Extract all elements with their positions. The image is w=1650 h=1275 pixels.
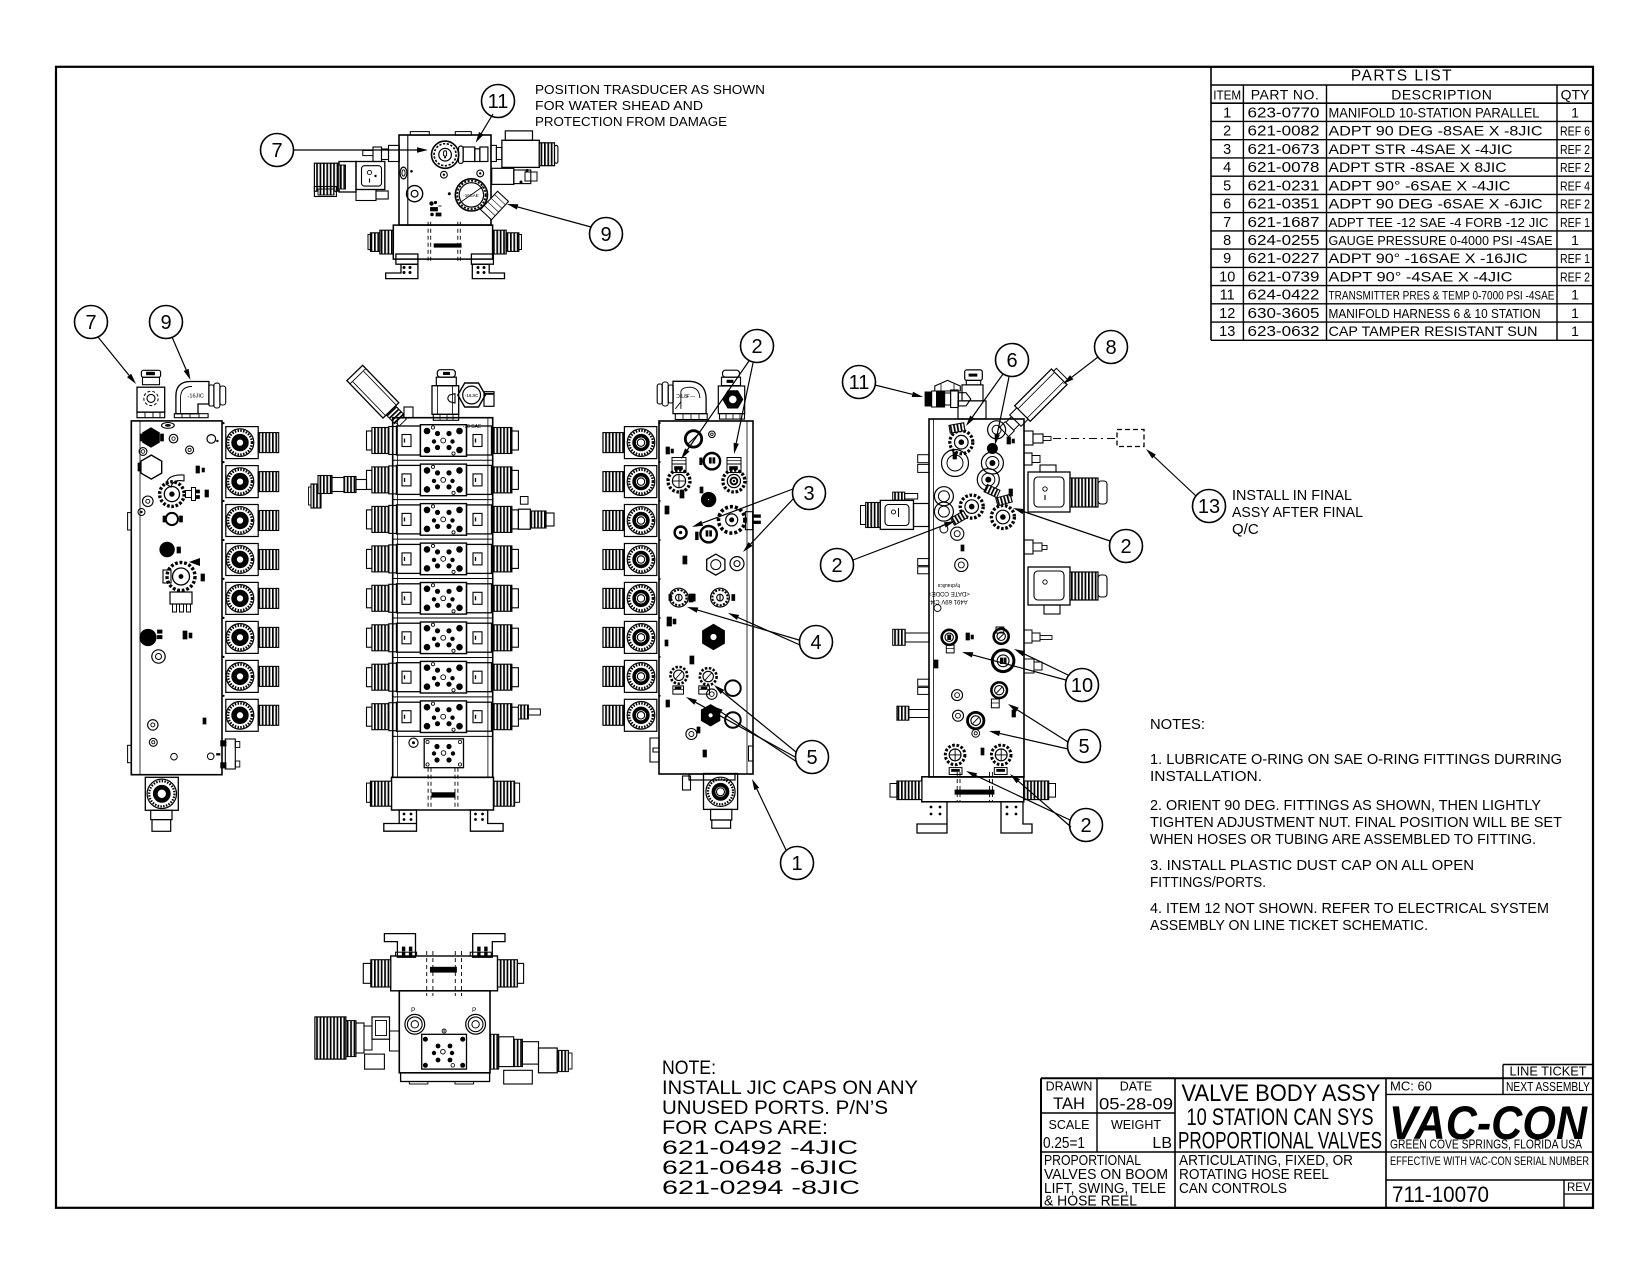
svg-text:ADPT STR -8SAE X 8JIC: ADPT STR -8SAE X 8JIC (1329, 159, 1507, 175)
svg-text:<DATE CODE>: <DATE CODE> (928, 590, 970, 596)
svg-text:ADPT 90 DEG -8SAE X -8JIC: ADPT 90 DEG -8SAE X -8JIC (1329, 123, 1543, 139)
svg-text:1: 1 (1571, 305, 1579, 321)
svg-text:9: 9 (600, 224, 611, 246)
svg-text:630-3605: 630-3605 (1248, 306, 1320, 322)
svg-text:6: 6 (1223, 197, 1231, 213)
svg-text:4. ITEM 12 NOT SHOWN. REFER TO: 4. ITEM 12 NOT SHOWN. REFER TO ELECTRICA… (1150, 900, 1549, 917)
svg-text:Q/C: Q/C (1232, 521, 1259, 538)
svg-text:FOR WATER SHEAD AND: FOR WATER SHEAD AND (535, 98, 703, 113)
svg-text:LB: LB (1152, 1135, 1172, 1152)
svg-text:9: 9 (160, 312, 171, 334)
svg-text:1: 1 (1571, 104, 1579, 120)
svg-text:ADPT 90° -4SAE X -4JIC: ADPT 90° -4SAE X -4JIC (1329, 269, 1513, 285)
svg-text:-16JIC: -16JIC (465, 393, 479, 398)
svg-text:NOTE:: NOTE: (662, 1058, 716, 1079)
svg-text:2: 2 (831, 555, 842, 577)
svg-text:621-0294 -8JIC: 621-0294 -8JIC (662, 1178, 860, 1199)
svg-text:NEXT ASSEMBLY: NEXT ASSEMBLY (1506, 1080, 1591, 1094)
svg-text:GAUGE PRESSURE 0-4000 PSI -4SA: GAUGE PRESSURE 0-4000 PSI -4SAE (1329, 233, 1553, 248)
svg-text:GREEN COVE SPRINGS, FLORIDA US: GREEN COVE SPRINGS, FLORIDA USA (1390, 1138, 1583, 1152)
svg-text:621-1687: 621-1687 (1248, 215, 1320, 231)
svg-text:EFFECTIVE WITH VAC-CON SERIAL: EFFECTIVE WITH VAC-CON SERIAL NUMBER (1390, 1154, 1589, 1168)
svg-text:3: 3 (803, 483, 814, 505)
svg-text:REF 1: REF 1 (1560, 216, 1590, 230)
svg-text:SCALE: SCALE (1049, 1118, 1090, 1132)
svg-text:A491 69V CI4: A491 69V CI4 (930, 598, 968, 604)
svg-text:PARTS LIST: PARTS LIST (1351, 68, 1453, 85)
svg-text:ADPT STR -4SAE X -4JIC: ADPT STR -4SAE X -4JIC (1329, 141, 1513, 157)
svg-text:7: 7 (85, 312, 96, 334)
svg-text:2: 2 (1080, 815, 1091, 837)
svg-text:FITTINGS/PORTS.: FITTINGS/PORTS. (1150, 874, 1266, 891)
svg-text:623-0770: 623-0770 (1248, 105, 1320, 121)
svg-text:621-0231: 621-0231 (1248, 178, 1320, 194)
svg-text:11: 11 (488, 91, 509, 113)
svg-text:621-0673: 621-0673 (1248, 142, 1320, 158)
svg-text:WEIGHT: WEIGHT (1111, 1118, 1161, 1132)
svg-text:MANIFOLD HARNESS 6 & 10 STATIO: MANIFOLD HARNESS 6 & 10 STATION (1329, 306, 1541, 321)
svg-text:624-0255: 624-0255 (1248, 233, 1320, 249)
svg-text:05-28-09: 05-28-09 (1099, 1096, 1173, 1114)
svg-text:621-0078: 621-0078 (1248, 160, 1320, 176)
svg-text:624-0422: 624-0422 (1248, 288, 1320, 304)
svg-text:621-0492 -4JIC: 621-0492 -4JIC (662, 1138, 858, 1159)
svg-text:ASSY AFTER FINAL: ASSY AFTER FINAL (1232, 504, 1363, 521)
svg-text:8: 8 (1223, 233, 1231, 249)
svg-text:3: 3 (1223, 142, 1231, 158)
svg-text:ADPT 90° -16SAE X -16JIC: ADPT 90° -16SAE X -16JIC (1329, 250, 1528, 266)
svg-text:-16SAE: -16SAE (463, 193, 479, 198)
svg-text:DRAWN: DRAWN (1046, 1080, 1093, 1094)
svg-text:4: 4 (1223, 160, 1231, 176)
svg-text:NOTES:: NOTES: (1150, 716, 1205, 733)
svg-text:WHEN HOSES OR TUBING ARE ASSEM: WHEN HOSES OR TUBING ARE ASSEMBLED TO FI… (1150, 831, 1536, 848)
svg-text:1: 1 (1571, 323, 1579, 339)
svg-text:LINE TICKET: LINE TICKET (1510, 1065, 1587, 1079)
svg-text:CAN CONTROLS: CAN CONTROLS (1179, 1180, 1287, 1197)
svg-text:CAP TAMPER RESISTANT SUN: CAP TAMPER RESISTANT SUN (1329, 323, 1538, 339)
svg-text:ASSEMBLY ON LINE TICKET SCHEMA: ASSEMBLY ON LINE TICKET SCHEMATIC. (1150, 917, 1428, 934)
svg-text:2: 2 (751, 336, 762, 358)
svg-text:REF 2: REF 2 (1560, 271, 1590, 285)
svg-text:PART NO.: PART NO. (1251, 87, 1320, 103)
svg-text:2. ORIENT 90 DEG. FITTINGS AS: 2. ORIENT 90 DEG. FITTINGS AS SHOWN, THE… (1150, 797, 1541, 814)
svg-text:UNUSED PORTS. P/N’S: UNUSED PORTS. P/N’S (662, 1098, 888, 1119)
svg-text:ADPT TEE -12 SAE -4 FORB -12 J: ADPT TEE -12 SAE -4 FORB -12 JIC (1329, 215, 1549, 230)
svg-text:1: 1 (1223, 105, 1231, 121)
svg-text:ITEM: ITEM (1213, 88, 1241, 103)
svg-text:ADPT 90 DEG -6SAE X -6JIC: ADPT 90 DEG -6SAE X -6JIC (1329, 196, 1543, 212)
svg-text:QTY: QTY (1561, 87, 1590, 103)
svg-text:621-0227: 621-0227 (1248, 251, 1320, 267)
svg-text:7: 7 (1223, 215, 1231, 231)
svg-text:TRANSMITTER PRES & TEMP 0-7000: TRANSMITTER PRES & TEMP 0-7000 PSI -4SAE (1329, 289, 1555, 303)
svg-text:13: 13 (1219, 324, 1235, 340)
svg-text:5: 5 (806, 747, 817, 769)
svg-text:3. INSTALL PLASTIC DUST CAP ON: 3. INSTALL PLASTIC DUST CAP ON ALL OPEN (1150, 857, 1474, 874)
svg-text:7: 7 (271, 140, 282, 162)
svg-text:1. LUBRICATE O-RING ON SAE O-R: 1. LUBRICATE O-RING ON SAE O-RING FITTIN… (1150, 751, 1562, 768)
svg-text:REF 2: REF 2 (1560, 198, 1590, 212)
svg-text:REF 1: REF 1 (1560, 252, 1590, 266)
svg-text:REV: REV (1567, 1182, 1591, 1194)
svg-text:REF 6: REF 6 (1560, 125, 1590, 139)
svg-text:TIGHTEN ADJUSTMENT NUT. FINAL: TIGHTEN ADJUSTMENT NUT. FINAL POSITION W… (1150, 814, 1562, 831)
svg-text:1: 1 (1571, 287, 1579, 303)
svg-text:ƆIL8Ғ—: ƆIL8Ғ— (676, 394, 696, 400)
svg-text:621-0648 -6JIC: 621-0648 -6JIC (662, 1158, 858, 1179)
svg-text:11: 11 (1220, 288, 1235, 304)
svg-text:INSTALL JIC CAPS ON ANY: INSTALL JIC CAPS ON ANY (662, 1078, 918, 1099)
svg-text:8: 8 (1105, 337, 1116, 359)
svg-text:5: 5 (1223, 178, 1231, 194)
svg-text:REF 2: REF 2 (1560, 143, 1590, 157)
svg-text:INSTALL IN FINAL: INSTALL IN FINAL (1232, 487, 1352, 504)
svg-text:2: 2 (1120, 536, 1131, 558)
svg-text:10: 10 (1071, 675, 1093, 697)
svg-text:11: 11 (849, 372, 870, 394)
svg-text:PROPORTIONAL VALVES: PROPORTIONAL VALVES (1178, 1128, 1382, 1155)
svg-text:VALVE BODY ASSY: VALVE BODY ASSY (1182, 1080, 1381, 1107)
svg-text:hydraulics: hydraulics (937, 582, 960, 588)
svg-text:5: 5 (1078, 736, 1089, 758)
svg-text:4: 4 (810, 632, 821, 654)
svg-text:POSITION TRASDUCER AS SHOWN: POSITION TRASDUCER AS SHOWN (535, 82, 765, 97)
svg-text:13: 13 (1198, 496, 1220, 518)
svg-text:1: 1 (791, 853, 802, 875)
svg-text:MC: 60: MC: 60 (1390, 1079, 1432, 1094)
svg-text:621-0739: 621-0739 (1248, 270, 1320, 286)
svg-text:DATE: DATE (1120, 1080, 1152, 1094)
svg-text:0.25=1: 0.25=1 (1043, 1135, 1085, 1152)
svg-text:REF 2: REF 2 (1560, 161, 1590, 175)
svg-text:DESCRIPTION: DESCRIPTION (1391, 87, 1492, 103)
svg-text:1: 1 (1571, 232, 1579, 248)
svg-text:P: P (411, 1007, 415, 1014)
svg-text:621-0082: 621-0082 (1248, 124, 1320, 140)
svg-text:MANIFOLD 10-STATION PARALLEL: MANIFOLD 10-STATION PARALLEL (1329, 104, 1540, 120)
svg-text:6: 6 (1006, 350, 1017, 372)
svg-text:10: 10 (1219, 270, 1235, 286)
svg-text:621-0351: 621-0351 (1248, 197, 1320, 213)
svg-text:2: 2 (1223, 124, 1231, 140)
svg-text:P: P (472, 1007, 476, 1014)
svg-text:TAH: TAH (1053, 1095, 1085, 1113)
svg-text:ADPT 90° -6SAE X -4JIC: ADPT 90° -6SAE X -4JIC (1329, 177, 1511, 193)
svg-text:INSTALLATION.: INSTALLATION. (1150, 768, 1262, 785)
svg-text:REF 4: REF 4 (1560, 179, 1590, 193)
svg-text:9: 9 (1223, 251, 1231, 267)
svg-text:623-0632: 623-0632 (1248, 324, 1320, 340)
svg-text:-16JIC: -16JIC (188, 394, 204, 400)
svg-text:12: 12 (1219, 306, 1235, 322)
svg-text:711-10070: 711-10070 (1392, 1182, 1489, 1207)
svg-text:PROTECTION FROM DAMAGE: PROTECTION FROM DAMAGE (535, 114, 727, 129)
svg-text:FOR CAPS ARE:: FOR CAPS ARE: (662, 1118, 828, 1139)
svg-text:& HOSE REEL: & HOSE REEL (1044, 1193, 1137, 1210)
